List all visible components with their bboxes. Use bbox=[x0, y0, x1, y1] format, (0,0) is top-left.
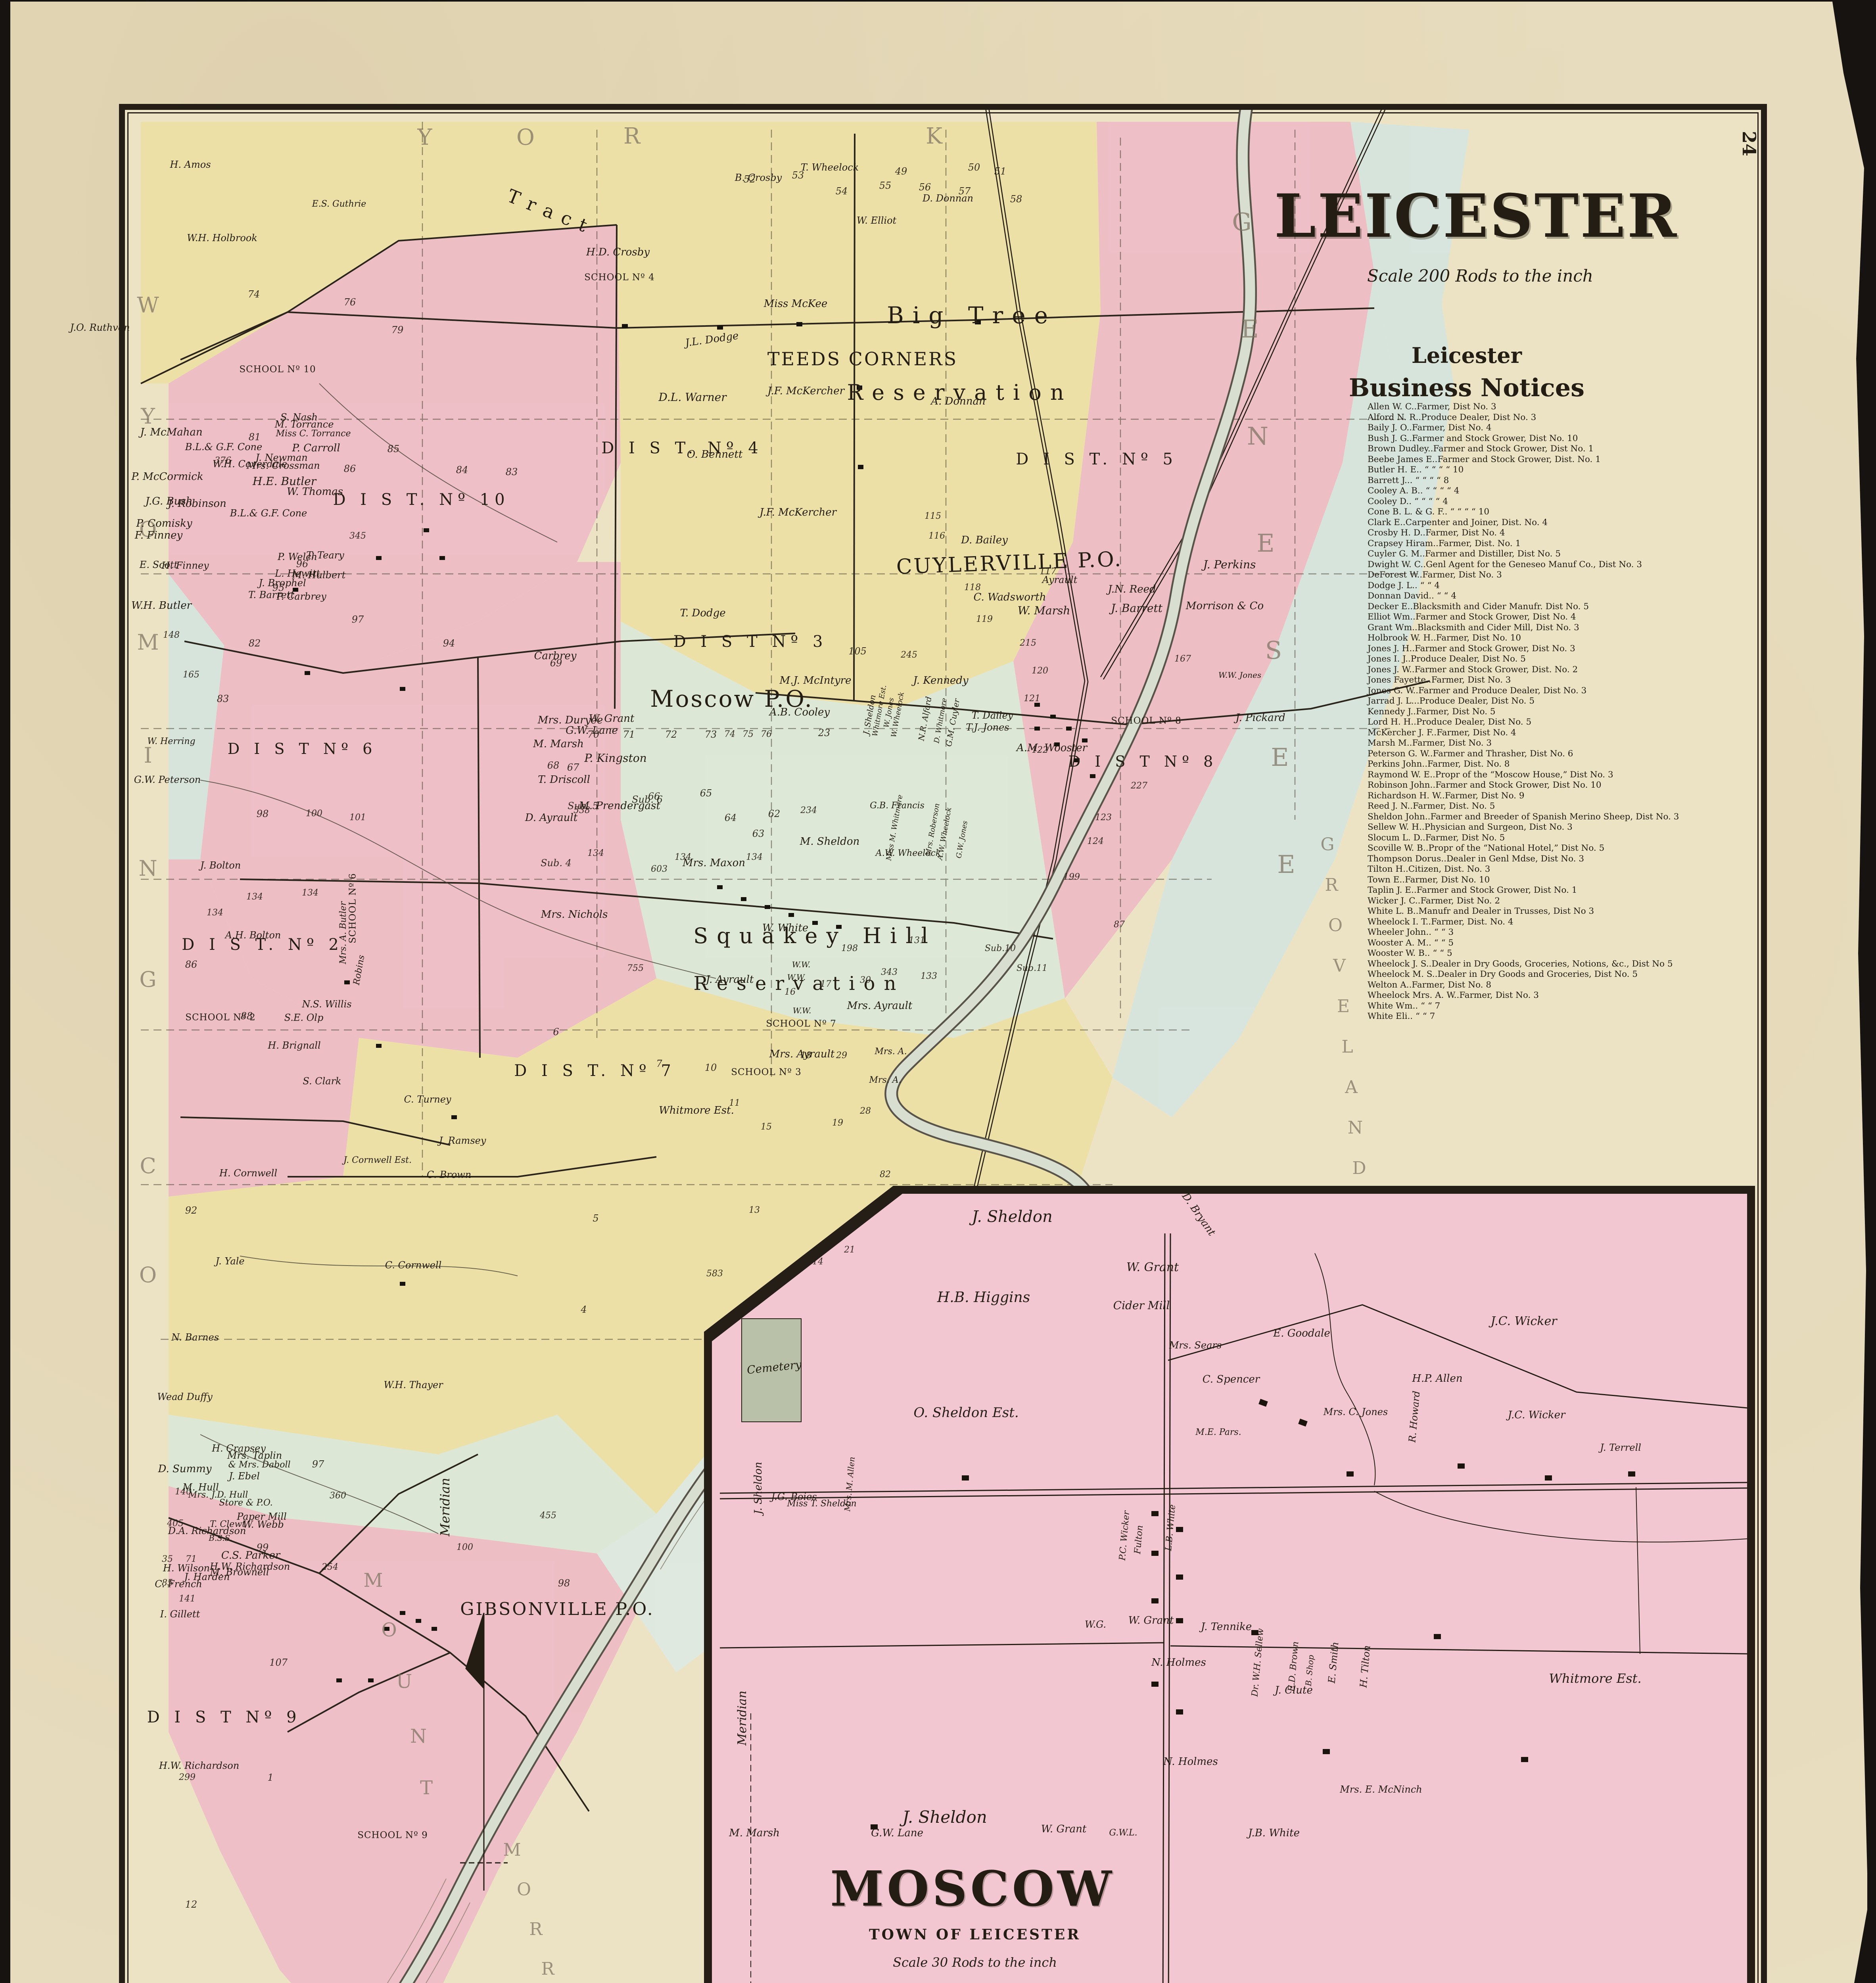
business-notice-entry: Alford N. R..Produce Dealer, Dist No. 3 bbox=[1368, 413, 1740, 423]
business-notice-entry: Wheelock Mrs. A. W..Farmer, Dist No. 3 bbox=[1368, 991, 1740, 1001]
business-notice-entry: Donnan David.. “ “ 4 bbox=[1368, 591, 1740, 601]
business-notice-entry: Jones I. J..Produce Dealer, Dist No. 5 bbox=[1368, 654, 1740, 664]
business-notice-entry: Town E..Farmer, Dist No. 10 bbox=[1368, 875, 1740, 885]
business-notice-entry: Thompson Dorus..Dealer in Genl Mdse, Dis… bbox=[1368, 854, 1740, 864]
business-notice-entry: Grant Wm..Blacksmith and Cider Mill, Dis… bbox=[1368, 623, 1740, 633]
inset-moscow[interactable] bbox=[704, 1186, 1755, 1983]
business-notice-entry: Peterson G. W..Farmer and Thrasher, Dist… bbox=[1368, 749, 1740, 759]
business-notice-entry: Decker E..Blacksmith and Cider Manufr. D… bbox=[1368, 602, 1740, 612]
inset-moscow-art bbox=[704, 1186, 1755, 1983]
business-notice-entry: Tilton H..Citizen, Dist. No. 3 bbox=[1368, 865, 1740, 875]
business-notice-entry: Cone B. L. & G. F.. “ “ “ “ 10 bbox=[1368, 507, 1740, 517]
business-notice-entry: Sellew W. H..Physician and Surgeon, Dist… bbox=[1368, 823, 1740, 832]
business-notice-entry: DeForest W..Farmer, Dist No. 3 bbox=[1368, 570, 1740, 580]
business-notice-entry: Cuyler G. M..Farmer and Distiller, Dist … bbox=[1368, 549, 1740, 559]
business-notice-entry: Crapsey Hiram..Farmer, Dist. No. 1 bbox=[1368, 539, 1740, 549]
business-notice-entry: Cooley A. B.. “ “ “ “ 4 bbox=[1368, 486, 1740, 496]
business-notice-entry: Kennedy J..Farmer, Dist No. 5 bbox=[1368, 707, 1740, 717]
business-notice-entry: Elliot Wm..Farmer and Stock Grower, Dist… bbox=[1368, 612, 1740, 622]
business-notice-entry: Brown Dudley..Farmer and Stock Grower, D… bbox=[1368, 444, 1740, 454]
business-notice-entry: Wheelock J. S..Dealer in Dry Goods, Groc… bbox=[1368, 959, 1740, 969]
business-notice-entry: Allen W. C..Farmer, Dist No. 3 bbox=[1368, 402, 1740, 412]
business-notice-entry: Wheelock M. S..Dealer in Dry Goods and G… bbox=[1368, 970, 1740, 980]
business-notice-entry: Butler H. E.. “ “ “ “ 10 bbox=[1368, 465, 1740, 475]
business-notice-entry: White L. B..Manufr and Dealer in Trusses… bbox=[1368, 907, 1740, 917]
business-notice-entry: Bush J. G..Farmer and Stock Grower, Dist… bbox=[1368, 434, 1740, 444]
business-notice-entry: White Eli.. “ “ 7 bbox=[1368, 1012, 1740, 1022]
business-notice-entry: Lord H. H..Produce Dealer, Dist No. 5 bbox=[1368, 717, 1740, 727]
business-notice-entry: Marsh M..Farmer, Dist No. 3 bbox=[1368, 738, 1740, 748]
business-notice-entry: Beebe James E..Farmer and Stock Grower, … bbox=[1368, 455, 1740, 465]
atlas-plate: Allen W. C..Farmer, Dist No. 3Alford N. … bbox=[0, 0, 1876, 1983]
business-notice-entry: Crosby H. D..Farmer, Dist No. 4 bbox=[1368, 528, 1740, 538]
business-notice-entry: Clark E..Carpenter and Joiner, Dist. No.… bbox=[1368, 518, 1740, 528]
business-notice-entry: Dwight W. C..Genl Agent for the Geneseo … bbox=[1368, 560, 1740, 570]
business-notice-entry: Cooley D.. “ “ “ “ 4 bbox=[1368, 497, 1740, 507]
business-notice-entry: Wooster A. M.. “ “ 5 bbox=[1368, 938, 1740, 948]
business-notice-entry: Reed J. N..Farmer, Dist. No. 5 bbox=[1368, 802, 1740, 811]
business-notice-entry: Jarrad J. L...Produce Dealer, Dist No. 5 bbox=[1368, 696, 1740, 706]
business-notice-entry: McKercher J. F..Farmer, Dist No. 4 bbox=[1368, 728, 1740, 738]
business-notice-entry: Wicker J. C..Farmer, Dist No. 2 bbox=[1368, 896, 1740, 906]
business-notice-entry: Richardson H. W..Farmer, Dist No. 9 bbox=[1368, 791, 1740, 801]
business-notice-entry: Sheldon John..Farmer and Breeder of Span… bbox=[1368, 812, 1740, 822]
business-notice-entry: Holbrook W. H..Farmer, Dist No. 10 bbox=[1368, 633, 1740, 643]
business-notice-entry: Scoville W. B..Propr of the “National Ho… bbox=[1368, 844, 1740, 853]
business-notice-entry: Jones G. W..Farmer and Produce Dealer, D… bbox=[1368, 686, 1740, 696]
business-notice-entry: Slocum L. D..Farmer, Dist No. 5 bbox=[1368, 833, 1740, 843]
business-notice-entry: Barrett J... “ “ “ “ 8 bbox=[1368, 476, 1740, 486]
business-notice-entry: Dodge J. L.. “ “ 4 bbox=[1368, 581, 1740, 591]
business-notice-entry: Jones Fayette..Farmer, Dist No. 3 bbox=[1368, 675, 1740, 685]
business-notice-entry: White Wm.. “ “ 7 bbox=[1368, 1001, 1740, 1011]
business-notices-list: Allen W. C..Farmer, Dist No. 3Alford N. … bbox=[1368, 402, 1740, 1022]
business-notice-entry: Wheelock I. T..Farmer, Dist. No. 4 bbox=[1368, 917, 1740, 927]
business-notice-entry: Baily J. O..Farmer, Dist No. 4 bbox=[1368, 423, 1740, 433]
business-notice-entry: Perkins John..Farmer, Dist. No. 8 bbox=[1368, 759, 1740, 769]
business-notice-entry: Wooster W. B.. “ “ 5 bbox=[1368, 949, 1740, 959]
business-notice-entry: Taplin J. E..Farmer and Stock Grower, Di… bbox=[1368, 886, 1740, 896]
business-notice-entry: Raymond W. E..Propr of the “Moscow House… bbox=[1368, 770, 1740, 780]
business-notice-entry: Welton A..Farmer, Dist No. 8 bbox=[1368, 980, 1740, 990]
business-notice-entry: Jones J. H..Farmer and Stock Grower, Dis… bbox=[1368, 644, 1740, 654]
business-notice-entry: Wheeler John.. “ “ 3 bbox=[1368, 928, 1740, 938]
business-notice-entry: Jones J. W..Farmer and Stock Grower, Dis… bbox=[1368, 665, 1740, 675]
business-notice-entry: Robinson John..Farmer and Stock Grower, … bbox=[1368, 781, 1740, 790]
